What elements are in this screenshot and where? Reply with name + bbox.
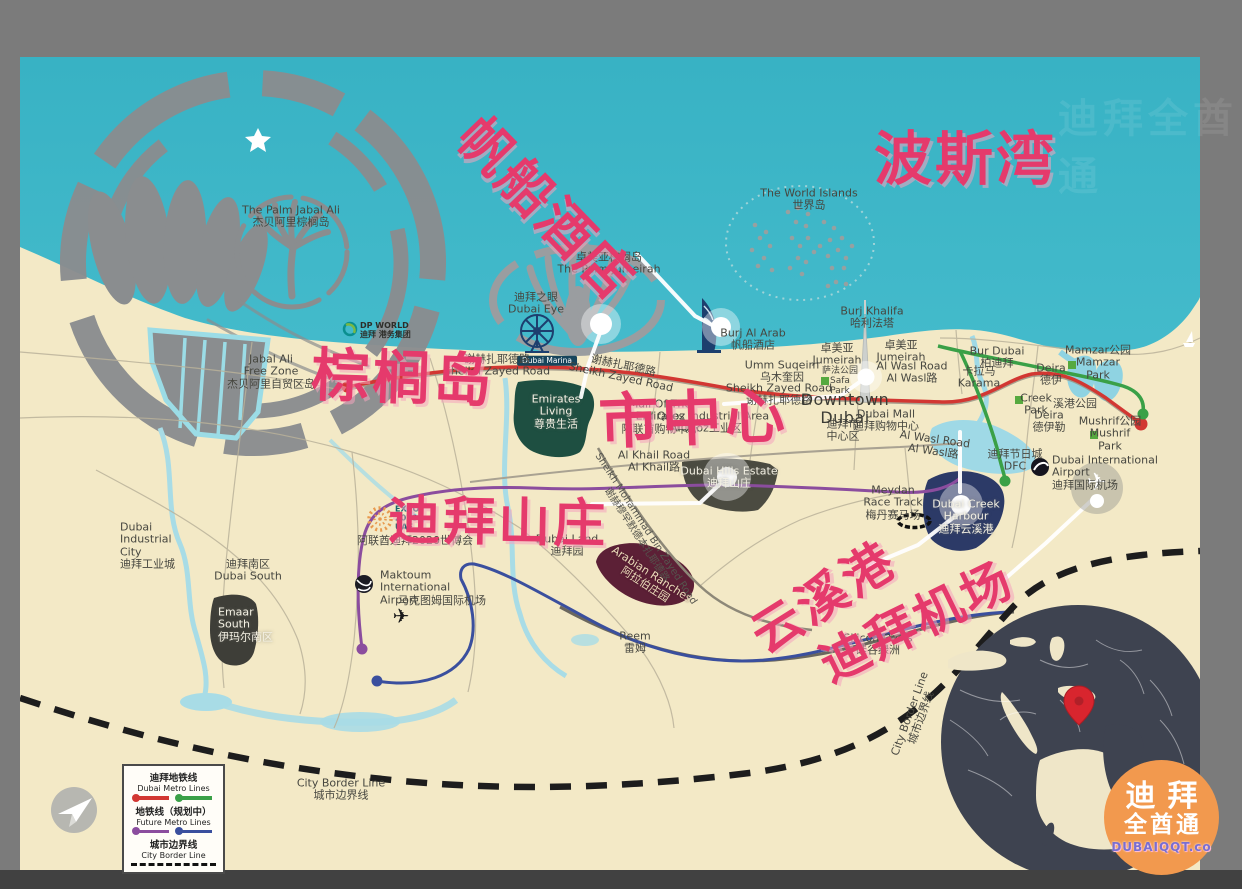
metro-red-line-sample — [135, 796, 169, 800]
border-line-sample — [131, 863, 216, 866]
logo-line3: DUBAIQQT.co — [1111, 840, 1211, 854]
maktoum-globe-icon — [355, 575, 373, 593]
frame-top — [0, 0, 1242, 57]
legend-future-title-cn: 地铁线（规划中） — [126, 804, 221, 818]
legend-future-samples — [126, 830, 221, 834]
dubai-map-screenshot: ✈ ✈ — [0, 0, 1242, 889]
logo-line2: 全酋通 — [1121, 813, 1202, 838]
legend-metro-samples — [126, 796, 221, 800]
dfc-icon — [1031, 458, 1049, 476]
dxb-airplane-icon: ✈ — [1087, 468, 1107, 496]
map-legend: 迪拜地铁线 Dubai Metro Lines 地铁线（规划中） Future … — [122, 764, 225, 874]
paper-plane-icon — [51, 787, 97, 833]
metro-purple-line-sample — [135, 830, 169, 834]
legend-metro-title-en: Dubai Metro Lines — [126, 784, 221, 793]
metro-green-line-sample — [178, 796, 212, 800]
frame-left — [0, 57, 20, 870]
logo-line1: 迪拜 — [1114, 781, 1210, 813]
metro-blue-line-sample — [178, 830, 212, 834]
legend-border-title-cn: 城市边界线 — [126, 837, 221, 851]
map-canvas: ✈ ✈ — [0, 0, 1242, 889]
sky-watermark: 迪拜全酋通 — [1058, 86, 1242, 202]
legend-future-title-en: Future Metro Lines — [126, 818, 221, 827]
dubaiqqt-logo: 迪拜 全酋通 DUBAIQQT.co — [1104, 760, 1219, 875]
legend-border-title-en: City Border Line — [126, 851, 221, 860]
emaar-south-area — [210, 595, 258, 666]
maktoum-airplane-icon: ✈ — [393, 604, 410, 628]
legend-metro-title-cn: 迪拜地铁线 — [126, 770, 221, 784]
